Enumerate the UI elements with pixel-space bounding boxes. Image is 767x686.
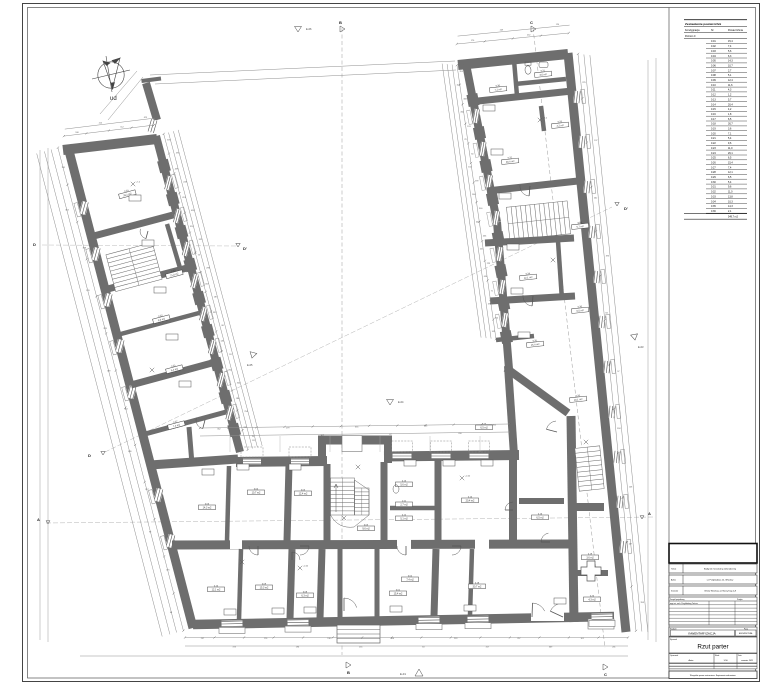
svg-text:ARCHITEKTURA: ARCHITEKTURA xyxy=(739,632,753,635)
svg-text:20,4: 20,4 xyxy=(728,103,733,106)
svg-text:E-03: E-03 xyxy=(638,345,644,349)
svg-text:0.33: 0.33 xyxy=(711,195,716,198)
svg-text:Rysunek: Rysunek xyxy=(670,639,677,641)
svg-text:0.11: 0.11 xyxy=(711,89,716,92)
svg-text:+0,00: +0,00 xyxy=(303,566,309,568)
svg-text:A: A xyxy=(37,517,40,522)
svg-text:0.12: 0.12 xyxy=(711,94,716,97)
svg-text:0.27: 0.27 xyxy=(711,166,716,169)
svg-text:0.32: 0.32 xyxy=(711,191,716,194)
svg-text:Wszystkie prawa zastrzeżone. K: Wszystkie prawa zastrzeżone. Kopiowanie … xyxy=(690,674,737,677)
svg-text:5,1 m2: 5,1 m2 xyxy=(400,517,408,520)
svg-text:Zespół projektowy: Zespół projektowy xyxy=(670,598,685,601)
svg-text:B: B xyxy=(339,20,342,25)
svg-text:10,7: 10,7 xyxy=(728,65,733,68)
svg-text:Skala: Skala xyxy=(715,655,719,657)
svg-text:0.03: 0.03 xyxy=(711,50,716,53)
svg-text:14,3: 14,3 xyxy=(728,60,733,63)
svg-text:14,3: 14,3 xyxy=(728,205,733,208)
svg-text:14,3 m2: 14,3 m2 xyxy=(203,506,212,509)
svg-text:6,5 m2: 6,5 m2 xyxy=(480,426,488,429)
svg-text:E-05: E-05 xyxy=(247,363,253,367)
svg-text:0.36: 0.36 xyxy=(711,210,716,213)
svg-text:ul. Przykładowa 12, Wrocław: ul. Przykładowa 12, Wrocław xyxy=(707,579,734,582)
svg-text:0.08: 0.08 xyxy=(711,74,716,77)
svg-text:D': D' xyxy=(243,246,247,251)
svg-text:0.35: 0.35 xyxy=(711,205,716,208)
svg-text:C: C xyxy=(530,20,533,25)
svg-text:Data: Data xyxy=(738,654,742,657)
svg-text:0.20: 0.20 xyxy=(711,132,716,135)
svg-text:9,6 m2: 9,6 m2 xyxy=(362,527,370,530)
svg-text:11,0: 11,0 xyxy=(728,147,733,150)
svg-text:0.28: 0.28 xyxy=(711,171,716,174)
svg-text:0.02: 0.02 xyxy=(711,45,716,48)
svg-text:0.22: 0.22 xyxy=(711,142,716,145)
svg-text:Podpis: Podpis xyxy=(737,599,743,601)
svg-text:0.24: 0.24 xyxy=(711,152,716,155)
svg-text:15,4: 15,4 xyxy=(728,162,733,165)
svg-text:B: B xyxy=(347,670,350,675)
svg-text:INWENTARYZACJA: INWENTARYZACJA xyxy=(688,631,715,635)
svg-text:czerwiec 2021: czerwiec 2021 xyxy=(741,659,753,662)
svg-text:0.13: 0.13 xyxy=(711,98,716,101)
svg-text:0.14: 0.14 xyxy=(711,103,716,106)
svg-text:0.07: 0.07 xyxy=(711,69,716,72)
svg-text:20,4 m2: 20,4 m2 xyxy=(466,499,475,502)
svg-text:Adres: Adres xyxy=(671,579,676,582)
svg-text:7,4 m2: 7,4 m2 xyxy=(406,578,414,581)
svg-text:E-01: E-01 xyxy=(400,672,406,676)
svg-text:30,7: 30,7 xyxy=(728,123,733,126)
svg-text:26,1: 26,1 xyxy=(728,152,733,155)
svg-text:4,3 m2: 4,3 m2 xyxy=(588,598,596,601)
svg-text:3,6 m2: 3,6 m2 xyxy=(586,556,594,559)
svg-text:D': D' xyxy=(624,206,628,211)
svg-text:E-04: E-04 xyxy=(398,400,404,404)
svg-text:E-06: E-06 xyxy=(306,27,312,31)
svg-text:10,7 m2: 10,7 m2 xyxy=(252,491,261,494)
svg-text:Powierzchnia: Powierzchnia xyxy=(728,29,743,32)
svg-text:0.09: 0.09 xyxy=(711,79,716,82)
svg-text:0.06: 0.06 xyxy=(711,65,716,68)
svg-text:0.19: 0.19 xyxy=(711,128,716,131)
svg-text:Inwestor: Inwestor xyxy=(671,590,679,593)
svg-text:0.26: 0.26 xyxy=(711,162,716,165)
svg-text:0.21: 0.21 xyxy=(711,137,716,140)
svg-text:0.23: 0.23 xyxy=(711,147,716,150)
svg-text:0.01: 0.01 xyxy=(711,40,716,43)
svg-text:0.31: 0.31 xyxy=(711,186,716,189)
svg-text:15,4: 15,4 xyxy=(728,40,733,43)
svg-text:Poziom 0: Poziom 0 xyxy=(685,35,696,38)
svg-text:Temat: Temat xyxy=(671,568,677,571)
svg-text:12,1 m2: 12,1 m2 xyxy=(212,588,221,591)
svg-text:549,7 m2: 549,7 m2 xyxy=(728,216,739,219)
svg-text:0.05: 0.05 xyxy=(711,60,716,63)
svg-text:12,1: 12,1 xyxy=(728,171,733,174)
svg-text:Opracował: Opracował xyxy=(670,654,679,657)
svg-text:Nr: Nr xyxy=(711,29,714,32)
svg-text:Zestawienie powierzchni: Zestawienie powierzchni xyxy=(685,22,721,26)
svg-text:0.17: 0.17 xyxy=(711,118,716,121)
svg-text:Gmina Wrocław, pl. Nowy Targ 1: Gmina Wrocław, pl. Nowy Targ 1-8 xyxy=(704,590,737,593)
svg-text:D: D xyxy=(33,242,36,247)
svg-text:13,8: 13,8 xyxy=(728,195,733,198)
svg-text:12,4: 12,4 xyxy=(728,79,733,82)
svg-text:5,6 m2: 5,6 m2 xyxy=(400,483,408,486)
svg-text:12,4 m2: 12,4 m2 xyxy=(299,492,308,495)
svg-text:6,3 m2: 6,3 m2 xyxy=(301,594,309,597)
svg-text:10,3: 10,3 xyxy=(728,200,733,203)
svg-text:11,0: 11,0 xyxy=(728,191,733,194)
svg-text:Autor: Autor xyxy=(689,659,694,662)
svg-text:0.29: 0.29 xyxy=(711,176,716,179)
svg-text:0.18: 0.18 xyxy=(711,123,716,126)
svg-text:15,3 m2: 15,3 m2 xyxy=(260,586,269,589)
svg-text:15,4 m2: 15,4 m2 xyxy=(394,592,403,595)
svg-text:0.25: 0.25 xyxy=(711,157,716,160)
svg-text:2,7 m2: 2,7 m2 xyxy=(400,503,408,506)
svg-text:0.04: 0.04 xyxy=(711,55,716,58)
svg-text:30,7 m2: 30,7 m2 xyxy=(473,585,482,588)
svg-text:+0,00: +0,00 xyxy=(465,476,471,478)
svg-text:Budynek mieszkalny wielorodzin: Budynek mieszkalny wielorodzinny xyxy=(704,568,737,571)
svg-text:6,5 m2: 6,5 m2 xyxy=(536,516,544,519)
svg-text:0.34: 0.34 xyxy=(711,200,716,203)
svg-text:C: C xyxy=(604,672,607,677)
svg-text:11,6: 11,6 xyxy=(728,84,733,87)
svg-text:A: A xyxy=(648,511,651,516)
svg-text:0.10: 0.10 xyxy=(711,84,716,87)
svg-text:0.30: 0.30 xyxy=(711,181,716,184)
svg-text:0.15: 0.15 xyxy=(711,108,716,111)
svg-text:Rzut parter: Rzut parter xyxy=(697,644,728,651)
svg-text:0.16: 0.16 xyxy=(711,113,716,116)
svg-text:D: D xyxy=(88,453,91,458)
svg-text:Kondygnacja: Kondygnacja xyxy=(685,29,700,32)
